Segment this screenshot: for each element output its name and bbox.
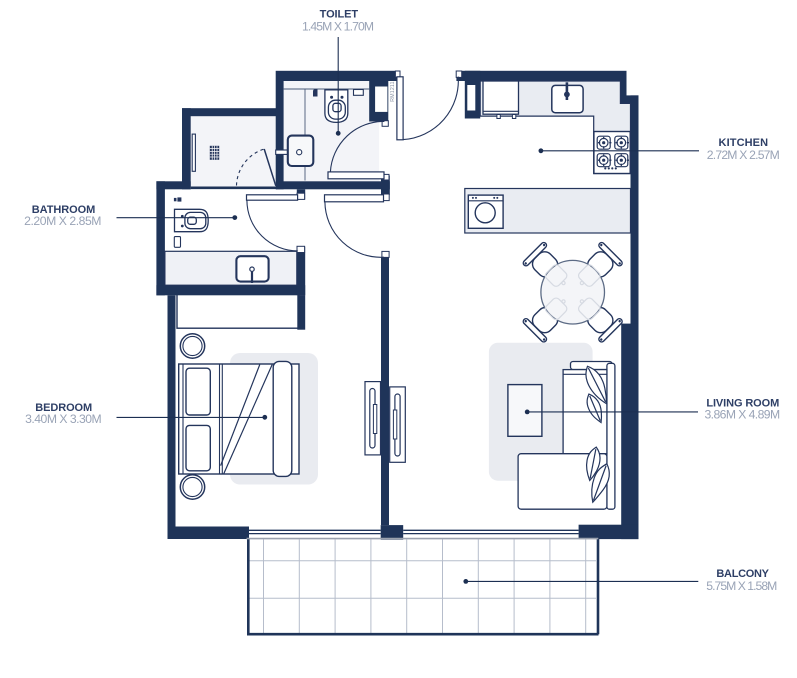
svg-text:2.72M X 2.57M: 2.72M X 2.57M — [707, 148, 780, 162]
svg-text:3.40M X 3.30M: 3.40M X 3.30M — [25, 412, 101, 426]
svg-text:3.86M X 4.89M: 3.86M X 4.89M — [704, 408, 780, 422]
svg-text:RM1211: RM1211 — [390, 81, 396, 101]
svg-text:1.45M X 1.70M: 1.45M X 1.70M — [302, 19, 374, 33]
svg-text:2.20M X 2.85M: 2.20M X 2.85M — [24, 214, 101, 228]
svg-text:5.75M X 1.58M: 5.75M X 1.58M — [706, 579, 777, 593]
